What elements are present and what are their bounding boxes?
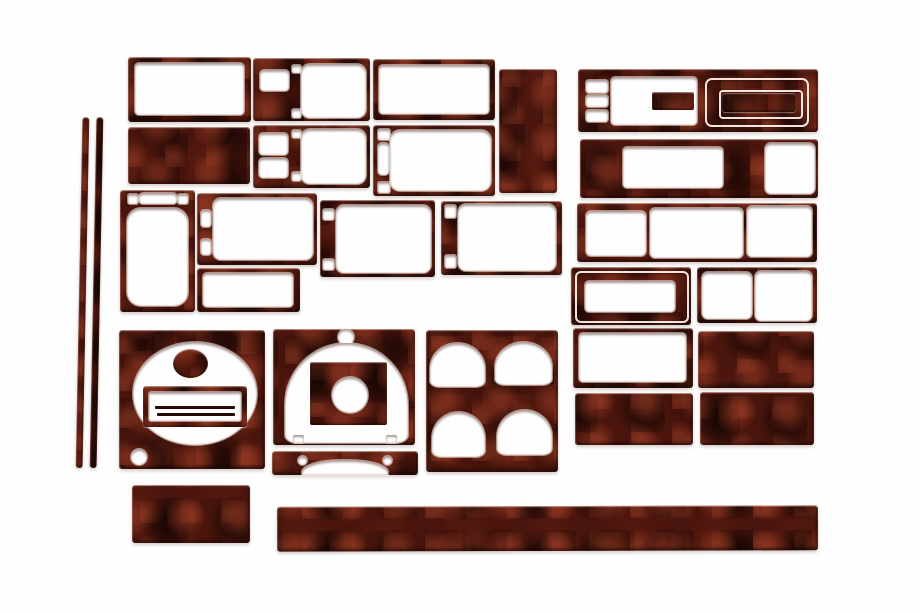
- clip-slot-bottom: [292, 109, 301, 118]
- side-slot-bottom: [201, 239, 211, 255]
- notch-right: [386, 435, 397, 443]
- shoulder-notch-right: [383, 456, 392, 465]
- blank-plate-a: [128, 127, 250, 184]
- rect-bezel-lower-right: [573, 328, 693, 388]
- gauge-hole-top-right: [495, 342, 552, 385]
- display-slot-1: [155, 406, 235, 409]
- dual-opening-bezel: [697, 267, 817, 323]
- clip-hole-top: [445, 205, 456, 218]
- blank-plate-e: [132, 485, 250, 543]
- console-panel-tall: [120, 190, 195, 312]
- column-lower-strip: [272, 451, 418, 475]
- corner-hole: [131, 449, 147, 465]
- rect-bezel-top-left: [128, 57, 251, 122]
- shoulder-notch-left: [298, 456, 307, 465]
- vent-bezel-upper: [253, 58, 370, 121]
- switch-opening-top: [259, 133, 288, 155]
- sill-trim-long-strip: [277, 505, 818, 551]
- gauge-panel: [119, 330, 265, 469]
- vent-bezel-mid-left: [197, 193, 317, 265]
- bezel-opening: [379, 65, 489, 114]
- vent-opening: [458, 204, 556, 271]
- clip-slot-top: [292, 65, 301, 73]
- gauge-hub: [173, 349, 208, 378]
- clip-hole-top: [323, 209, 334, 220]
- vent-opening: [301, 129, 366, 184]
- vent-opening: [301, 64, 366, 118]
- opening-left: [702, 272, 752, 319]
- clip-hole-bottom: [378, 182, 390, 193]
- display-slot-2: [157, 413, 235, 416]
- product-photo-canvas: [0, 0, 920, 613]
- pillar-trim-strip-2: [90, 117, 104, 468]
- rect-bezel-top-mid: [373, 59, 495, 120]
- display-pad: [722, 93, 796, 112]
- steering-column-hole: [332, 377, 368, 413]
- clip-slot-bottom: [292, 172, 301, 181]
- blank-plate-tall: [499, 69, 557, 193]
- opening-center: [650, 208, 743, 258]
- top-slot: [139, 193, 177, 204]
- gauge-hole-top-left: [430, 343, 485, 387]
- notch-left: [293, 435, 304, 443]
- button-hole-3: [586, 110, 608, 122]
- vent-opening: [213, 198, 313, 260]
- vent-bezel-mid-right: [441, 201, 562, 275]
- cluster-hood-panel: [273, 329, 415, 445]
- main-opening: [127, 208, 188, 306]
- clip-hole-bottom: [323, 259, 334, 270]
- clip-hole-right: [178, 194, 188, 204]
- vent-opening: [390, 130, 491, 191]
- button-hole-2: [586, 95, 608, 107]
- center-tab: [652, 92, 694, 110]
- radio-surround-lower: [580, 139, 818, 198]
- blank-plate-d: [700, 392, 814, 445]
- vent-opening: [336, 205, 431, 273]
- opening-right: [755, 271, 812, 321]
- center-opening: [585, 281, 675, 312]
- blank-plate-c: [575, 393, 693, 445]
- clip-slot-top: [292, 130, 301, 138]
- quad-gauge-panel: [426, 330, 558, 472]
- bezel-opening: [203, 273, 293, 307]
- side-slot: [378, 143, 389, 175]
- gauge-hole-bottom-right: [497, 410, 552, 455]
- arch-cutout: [302, 460, 388, 475]
- triple-opening-panel: [577, 203, 817, 262]
- button-hole-1: [586, 80, 608, 93]
- radio-surround-upper: [578, 69, 818, 132]
- vent-bezel-mid-center: [320, 200, 435, 277]
- switch-opening-bottom: [259, 158, 288, 178]
- clip-hole-top: [378, 129, 390, 140]
- switch-opening: [260, 70, 289, 91]
- pillar-trim-strip-1: [76, 117, 90, 468]
- side-vent-bezel-left: [373, 125, 495, 196]
- opening-left: [586, 211, 646, 256]
- blank-plate-b: [698, 331, 814, 388]
- side-slot-top: [201, 210, 211, 227]
- gauge-hole-bottom-left: [432, 412, 485, 457]
- opening-right: [747, 206, 812, 257]
- clip-hole-bottom: [445, 255, 456, 268]
- bezel-opening: [135, 63, 244, 115]
- vent-bezel-lower: [253, 125, 370, 188]
- small-rect-bezel: [197, 268, 300, 312]
- center-opening: [623, 147, 723, 188]
- double-groove-bezel: [571, 267, 691, 325]
- bezel-opening: [579, 333, 686, 382]
- right-opening: [765, 143, 815, 194]
- clip-hole-left: [128, 194, 138, 204]
